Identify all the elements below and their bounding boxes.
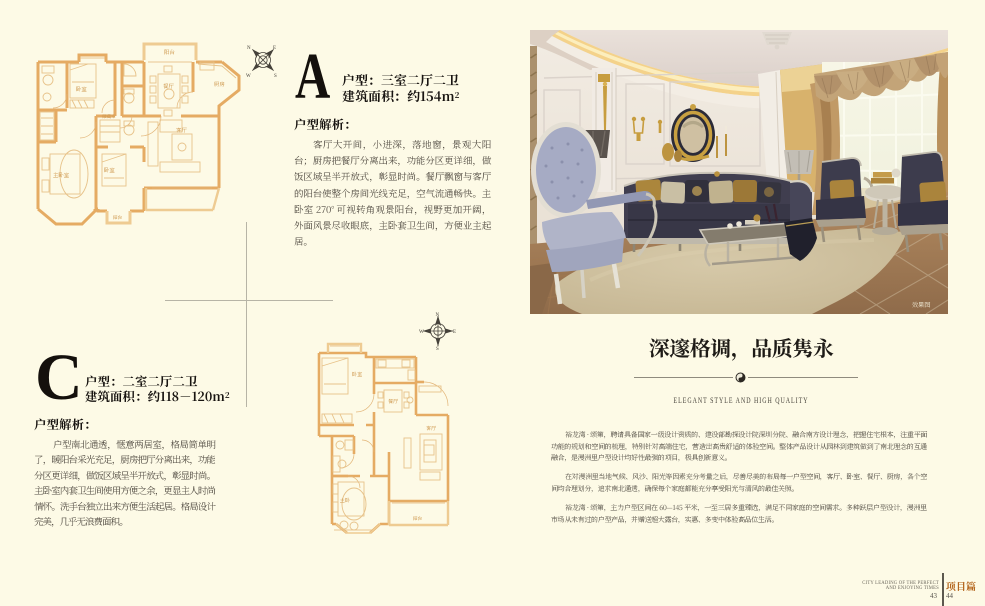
svg-text:卧室: 卧室	[76, 85, 87, 93]
svg-text:厨房: 厨房	[213, 80, 225, 88]
svg-text:餐厅: 餐厅	[162, 82, 174, 90]
svg-text:N: N	[436, 313, 440, 318]
svg-text:客厅: 客厅	[176, 126, 187, 134]
svg-text:W: W	[419, 330, 424, 335]
svg-text:卧室: 卧室	[104, 166, 115, 174]
svg-text:效果图: 效果图	[912, 300, 931, 309]
svg-text:餐厅: 餐厅	[387, 398, 399, 405]
svg-text:卧室: 卧室	[352, 371, 362, 378]
svg-text:阳台: 阳台	[164, 48, 175, 56]
svg-text:储藏室: 储藏室	[101, 113, 116, 120]
svg-text:E: E	[453, 330, 456, 335]
svg-text:阳台: 阳台	[113, 214, 123, 221]
svg-text:N: N	[247, 46, 251, 51]
svg-text:主卧: 主卧	[340, 497, 350, 504]
svg-text:阳台: 阳台	[413, 515, 423, 522]
svg-text:客厅: 客厅	[426, 425, 437, 432]
svg-text:S: S	[274, 74, 277, 79]
svg-text:W: W	[246, 74, 251, 79]
svg-text:主卧室: 主卧室	[53, 171, 70, 179]
svg-text:E: E	[273, 46, 276, 51]
